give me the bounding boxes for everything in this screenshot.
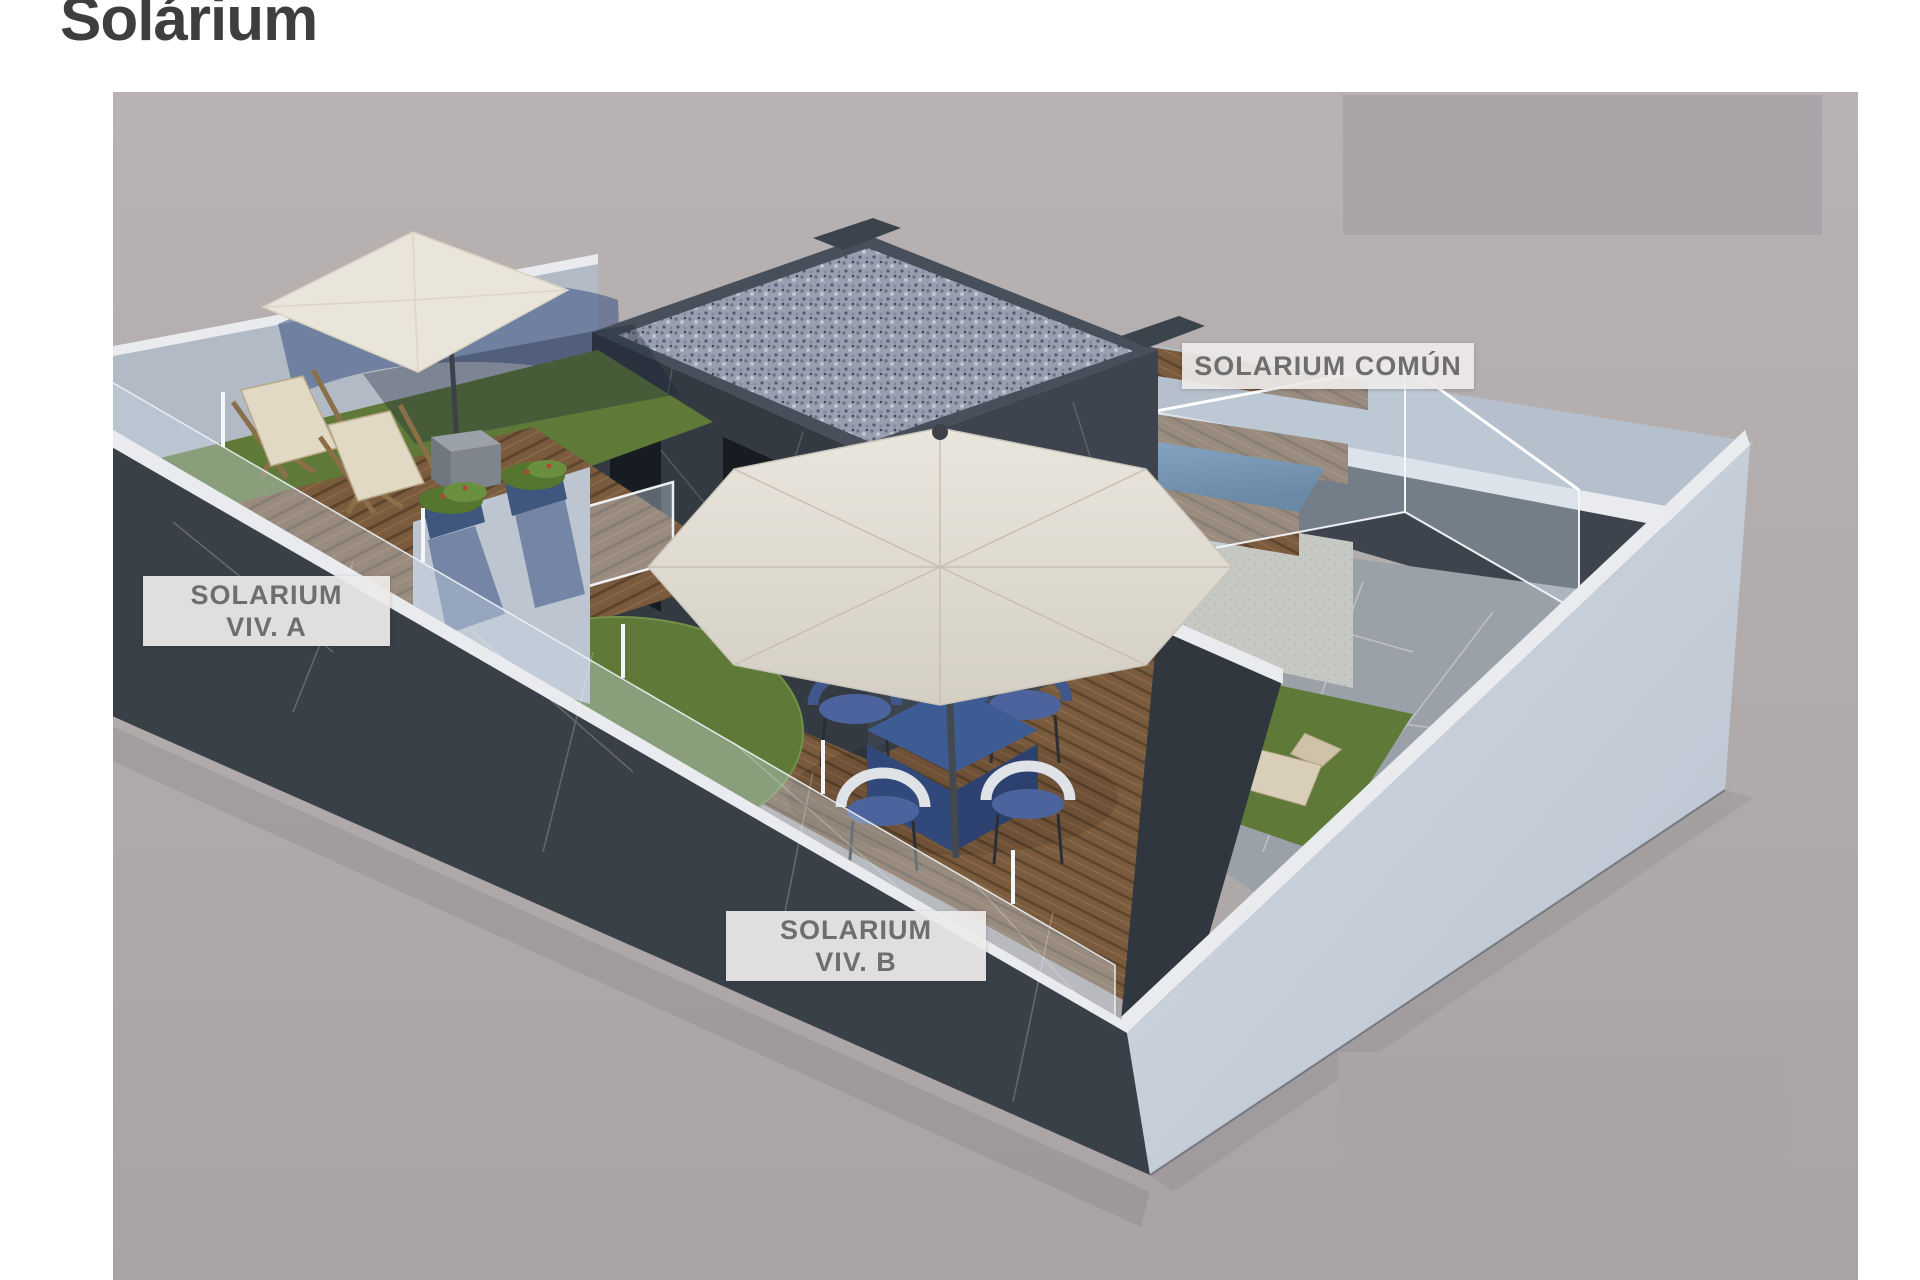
parasol-finial bbox=[932, 424, 948, 440]
zone-label-line: SOLARIUM COMÚN bbox=[1194, 350, 1461, 382]
zone-label-viv-a: SOLARIUM VIV. A bbox=[143, 576, 390, 646]
page-title: Solárium bbox=[60, 0, 317, 55]
zone-label-viv-b: SOLARIUM VIV. B bbox=[726, 911, 986, 981]
redacted-block-top-right bbox=[1343, 95, 1822, 235]
zone-label-line: VIV. A bbox=[226, 611, 307, 643]
zone-label-line: SOLARIUM bbox=[780, 914, 932, 946]
zone-label-comun: SOLARIUM COMÚN bbox=[1182, 343, 1474, 389]
zone-label-line: VIV. B bbox=[815, 946, 897, 978]
solarium-render-figure: SOLARIUM VIV. A SOLARIUM VIV. B SOLARIUM… bbox=[113, 92, 1858, 1280]
redacted-block-bottom-right bbox=[1338, 1052, 1788, 1280]
zone-label-line: SOLARIUM bbox=[191, 579, 343, 611]
